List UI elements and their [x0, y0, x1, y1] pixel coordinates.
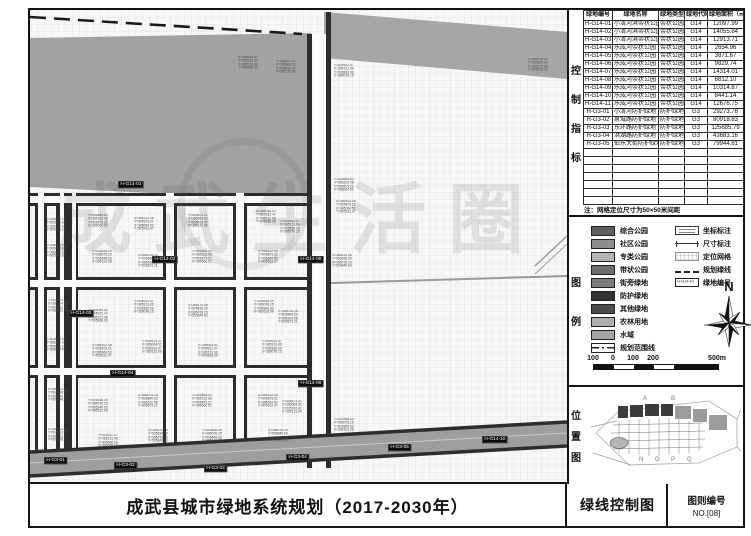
- green-space-id-badge: H-G3-04: [286, 454, 309, 461]
- table-cell: [659, 197, 685, 205]
- scale-bar-labels: 1000100200500m: [593, 355, 725, 364]
- table-cell: G14: [685, 37, 708, 45]
- table-row: H-G3-03东环路防护绿地防护绿地G3125685.79: [584, 125, 744, 133]
- coordinate-annotation: Y=505873.21X=385064.52Y=505912.47X=38513…: [282, 400, 302, 414]
- table-cell: [708, 197, 744, 205]
- legend-item-label: 其他绿地: [620, 304, 648, 314]
- table-cell: 带状公园: [659, 61, 685, 69]
- scale-segment: [674, 365, 718, 369]
- legend-symbol-dim-icon: [675, 239, 699, 248]
- table-empty-row: [584, 165, 744, 173]
- coordinate-annotation: Y=505912.47X=385131.96Y=505836.09X=38507…: [262, 340, 282, 354]
- legend-symbol-idbox-icon: H-G14-01: [675, 278, 699, 287]
- green-space-id-badge: H-G14-09: [298, 380, 324, 387]
- table-cell: 带状公园: [659, 37, 685, 45]
- table-cell: H-G14-06: [584, 61, 613, 69]
- coordinate-annotation: Y=505836.09X=385076.15Y=505849.63X=38510…: [202, 429, 222, 443]
- coordinate-annotation: X=385131.96Y=505836.09X=385076.15Y=50584…: [48, 388, 68, 402]
- table-cell: 带状公园: [659, 45, 685, 53]
- sheet-number-label: 图则编号: [687, 493, 725, 507]
- grid-letter: B: [671, 396, 675, 402]
- table-cell: 防护绿地: [659, 133, 685, 141]
- table-cell: 防护绿地: [659, 125, 685, 133]
- coordinate-annotation: Y=505849.63X=385102.08Y=505873.21X=38506…: [46, 338, 66, 352]
- north-label: N: [703, 279, 751, 294]
- table-cell: 乐成河带状公园: [613, 85, 659, 93]
- table-cell: 6812.10: [708, 77, 744, 85]
- coordinate-annotation: X=385102.08Y=505873.21X=385064.52Y=50591…: [258, 394, 278, 408]
- right-panel: 控 制 指 标 绿地编号绿地名称绿地类型绿地代码绿地面积（㎡） H-G14-01…: [569, 10, 743, 484]
- table-cell: H-G14-01: [584, 21, 613, 29]
- coordinate-annotation: Y=505912.47X=385131.96Y=505836.09X=38507…: [134, 300, 154, 314]
- legend-symbol-item: 坐标标注: [675, 224, 731, 237]
- table-row: H-G14-08乐成河带状公园带状公园G146812.10: [584, 77, 744, 85]
- table-cell: [659, 173, 685, 181]
- legend-symbol-label: 尺寸标注: [703, 239, 731, 249]
- table-header-cell: 绿地名称: [613, 11, 659, 21]
- table-body: H-G14-01小清河滨带状公园带状公园G1412097.99H-G14-02小…: [584, 21, 744, 205]
- coordinate-annotation: Y=505912.47X=385131.96Y=505836.09X=38507…: [98, 434, 118, 448]
- table-cell: G3: [685, 125, 708, 133]
- coordinate-annotation: X=385076.15Y=505849.63X=385102.08Y=50587…: [528, 58, 548, 72]
- table-cell: H-G14-11: [584, 101, 613, 109]
- table-cell: 8441.14: [708, 93, 744, 101]
- table-cell: 带状公园: [659, 85, 685, 93]
- coordinate-annotation: X=385064.52Y=505912.47X=385131.96Y=50583…: [48, 428, 68, 442]
- table-cell: 防护绿地: [659, 141, 685, 149]
- scale-segment: [654, 365, 674, 369]
- table-cell: [708, 181, 744, 189]
- table-cell: H-G14-04: [584, 45, 613, 53]
- table-cell: [685, 189, 708, 197]
- section-control-indicators: 控 制 指 标 绿地编号绿地名称绿地类型绿地代码绿地面积（㎡） H-G14-01…: [569, 10, 743, 217]
- table-row: H-G14-07乐成河带状公园带状公园G1414314.01: [584, 69, 744, 77]
- legend-symbol-label: 坐标标注: [703, 226, 731, 236]
- sheet-number-value: NO.[08]: [693, 509, 721, 518]
- vlabel-char: 制: [571, 91, 581, 106]
- table-row: H-G14-05乐成河带状公园带状公园G143871.67: [584, 53, 744, 61]
- table-cell: 乐成河带状公园: [613, 69, 659, 77]
- table-cell: [584, 173, 613, 181]
- table-cell: [584, 165, 613, 173]
- coordinate-annotation: Y=505873.21X=385064.52Y=505912.47X=38513…: [48, 299, 68, 313]
- table-cell: G14: [685, 93, 708, 101]
- table-cell: H-G3-05: [584, 141, 613, 149]
- table-cell: 乐成河带状公园: [613, 101, 659, 109]
- legend-item: 带状公园: [591, 263, 655, 276]
- legend-item: 水域: [591, 328, 655, 341]
- legend-swatch: [591, 304, 615, 314]
- table-cell: 125685.79: [708, 125, 744, 133]
- table-cell: 12676.75: [708, 101, 744, 109]
- coordinate-annotation: Y=505873.21X=385064.52Y=505912.47X=38513…: [142, 340, 162, 354]
- legend-item-label: 水域: [620, 330, 634, 340]
- table-row: H-G14-03小清河滨带状公园带状公园G1412913.71: [584, 37, 744, 45]
- legend-swatch: [591, 343, 615, 353]
- table-cell: 3871.67: [708, 53, 744, 61]
- table-cell: [584, 149, 613, 157]
- coordinate-annotation: Y=505836.09X=385076.15Y=505849.63X=38510…: [254, 300, 274, 314]
- table-cell: [613, 173, 659, 181]
- vlabel-char: 置: [571, 428, 581, 443]
- legend-swatch: [591, 278, 615, 288]
- legend-symbol-item: 定位网格: [675, 250, 731, 263]
- drawing-frame: 成武生活圈 X=385076.15Y=505849.63X=385102.08Y…: [28, 8, 745, 528]
- vlabel-char: 图: [571, 449, 581, 464]
- table-cell: [613, 197, 659, 205]
- legend-item: 综合公园: [591, 224, 655, 237]
- section-label-location: 位 置 图: [569, 387, 583, 484]
- table-cell: 43683.16: [708, 133, 744, 141]
- table-cell: 带状公园: [659, 77, 685, 85]
- table-cell: 9829.74: [708, 61, 744, 69]
- table-cell: 79944.81: [708, 141, 744, 149]
- section-label-control: 控 制 指 标: [569, 10, 583, 215]
- legend-swatch: [591, 317, 615, 327]
- green-space-id-badge: H-G3-01: [44, 457, 67, 464]
- legend-swatch-list: 综合公园社区公园专类公园带状公园街旁绿地防护绿地其他绿地农林用地水域规划范围线: [591, 224, 655, 354]
- table-cell: G14: [685, 61, 708, 69]
- table-cell: H-G3-03: [584, 125, 613, 133]
- table-cell: [708, 165, 744, 173]
- grid-letter: P: [671, 457, 675, 463]
- scale-bar-segments: [593, 364, 719, 370]
- table-cell: [685, 165, 708, 173]
- table-cell: 防护绿地: [659, 109, 685, 117]
- table-cell: 12913.71: [708, 37, 744, 45]
- legend-item-label: 规划范围线: [620, 343, 655, 353]
- section-location-map: 位 置 图: [569, 387, 743, 484]
- legend-symbol-coord-icon: [675, 226, 699, 235]
- scale-label: 100: [627, 355, 639, 362]
- legend-swatch: [591, 226, 615, 236]
- green-space-id-badge: H-G14-03: [68, 310, 94, 317]
- table-cell: G14: [685, 77, 708, 85]
- plan-map: 成武生活圈 X=385076.15Y=505849.63X=385102.08Y…: [30, 10, 569, 484]
- legend-swatch: [591, 265, 615, 275]
- table-cell: 伯乐大街防护绿地: [613, 141, 659, 149]
- sheet-number-block: 图则编号 NO.[08]: [670, 484, 743, 526]
- table-empty-row: [584, 189, 744, 197]
- scale-bar: 1000100200500m: [593, 355, 725, 370]
- title-bar: 成武县城市绿地系统规划（2017-2030年） 绿线控制图 图则编号 NO.[0…: [30, 484, 743, 526]
- watermark-text: 成武生活圈: [56, 158, 546, 268]
- vlabel-char: 图: [571, 274, 581, 289]
- table-cell: [613, 189, 659, 197]
- green-space-id-badge: H-G3-05: [388, 444, 411, 451]
- table-cell: H-G14-09: [584, 85, 613, 93]
- coordinate-annotation: Y=505836.09X=385076.15Y=505849.63X=38510…: [334, 418, 354, 432]
- table-cell: H-G3-01: [584, 109, 613, 117]
- legend-item-label: 街旁绿地: [620, 278, 648, 288]
- legend-item-label: 带状公园: [620, 265, 648, 275]
- table-cell: 12097.99: [708, 21, 744, 29]
- table-empty-row: [584, 149, 744, 157]
- table-cell: 带状公园: [659, 21, 685, 29]
- table-cell: H-G14-02: [584, 29, 613, 37]
- legend-item: 社区公园: [591, 237, 655, 250]
- table-cell: [659, 165, 685, 173]
- green-space-id-badge: H-G14-10: [482, 436, 508, 443]
- coordinate-annotation: Y=505873.21X=385064.52Y=505912.47X=38513…: [276, 60, 296, 74]
- table-cell: 小清河滨带状公园: [613, 29, 659, 37]
- table-cell: [685, 173, 708, 181]
- vlabel-char: 例: [571, 313, 581, 328]
- table-empty-row: [584, 173, 744, 181]
- table-cell: G3: [685, 117, 708, 125]
- compass-rose: N: [703, 279, 751, 357]
- green-space-id-badge: H-G14-04: [110, 370, 136, 377]
- legend-symbol-gdash-icon: [675, 271, 699, 273]
- table-cell: 乐成河带状公园: [613, 77, 659, 85]
- grid-letter: N: [639, 457, 643, 463]
- coordinate-annotation: X=385131.96Y=505836.09X=385076.15Y=50584…: [148, 429, 168, 443]
- table-header-cell: 绿地类型: [659, 11, 685, 21]
- table-cell: 2654.96: [708, 45, 744, 53]
- table-cell: G14: [685, 21, 708, 29]
- legend-item-label: 专类公园: [620, 252, 648, 262]
- compass-rose-icon: [703, 294, 751, 352]
- table-cell: 带状公园: [659, 93, 685, 101]
- table-cell: [708, 149, 744, 157]
- legend-symbol-item: 尺寸标注: [675, 237, 731, 250]
- sheet-name: 绿线控制图: [569, 484, 668, 526]
- coordinate-annotation: X=385064.52Y=505912.47X=385131.96Y=50583…: [238, 56, 258, 70]
- legend-item: 防护绿地: [591, 289, 655, 302]
- table-empty-row: [584, 181, 744, 189]
- table-cell: 带状公园: [659, 29, 685, 37]
- table-empty-row: [584, 157, 744, 165]
- grid-letter: Q: [687, 457, 692, 463]
- table-cell: G14: [685, 69, 708, 77]
- table-cell: [613, 165, 659, 173]
- table-cell: G3: [685, 109, 708, 117]
- table-cell: [584, 197, 613, 205]
- table-cell: G3: [685, 133, 708, 141]
- table-cell: 小清河滨带状公园: [613, 37, 659, 45]
- table-cell: 防护绿地: [659, 117, 685, 125]
- table-row: H-G3-05伯乐大街防护绿地防护绿地G379944.81: [584, 141, 744, 149]
- legend-item: 其他绿地: [591, 302, 655, 315]
- table-cell: [613, 149, 659, 157]
- table-cell: [584, 189, 613, 197]
- table-note: 注：网格定位尺寸为50×50米间距: [583, 205, 743, 217]
- grid-letter: O: [655, 457, 660, 463]
- table-cell: [613, 157, 659, 165]
- vlabel-char: 控: [571, 62, 581, 77]
- table-row: H-G3-01小清河防护绿地防护绿地G329273.78: [584, 109, 744, 117]
- legend-swatch: [591, 330, 615, 340]
- table-cell: [659, 157, 685, 165]
- table-cell: 带状公园: [659, 69, 685, 77]
- grid-letter: A: [643, 396, 647, 402]
- table-cell: G14: [685, 85, 708, 93]
- coordinate-annotation: X=385076.15Y=505849.63X=385102.08Y=50587…: [268, 429, 288, 443]
- table-cell: [685, 157, 708, 165]
- legend-item-label: 综合公园: [620, 226, 648, 236]
- table-cell: 乐成河带状公园: [613, 45, 659, 53]
- table-header-cell: 绿地编号: [584, 11, 613, 21]
- table-row: H-G3-02泉城路防护绿地防护绿地G380918.83: [584, 117, 744, 125]
- scale-segment: [614, 365, 634, 369]
- table-cell: G14: [685, 53, 708, 61]
- green-space-table: 绿地编号绿地名称绿地类型绿地代码绿地面积（㎡） H-G14-01小清河滨带状公园…: [583, 10, 744, 205]
- legend-item: 规划范围线: [591, 341, 655, 354]
- table-cell: 14055.84: [708, 29, 744, 37]
- legend-symbol-label: 定位网格: [703, 252, 731, 262]
- table-row: H-G14-01小清河滨带状公园带状公园G1412097.99: [584, 21, 744, 29]
- legend-item: 街旁绿地: [591, 276, 655, 289]
- table-row: H-G14-06乐成河带状公园带状公园G149829.74: [584, 61, 744, 69]
- legend-symbol-item: 规划绿线: [675, 263, 731, 276]
- table-row: H-G14-04乐成河带状公园带状公园G142654.96: [584, 45, 744, 53]
- table-cell: H-G14-10: [584, 93, 613, 101]
- table-cell: 乐成河带状公园: [613, 93, 659, 101]
- coordinate-annotation: X=385131.96Y=505836.09X=385076.15Y=50584…: [188, 304, 208, 318]
- green-space-id-badge: H-G3-03: [204, 465, 227, 472]
- section-label-legend: 图 例: [569, 217, 583, 385]
- legend-item: 农林用地: [591, 315, 655, 328]
- legend-item: 专类公园: [591, 250, 655, 263]
- legend-symbol-grid-icon: [675, 252, 699, 261]
- legend-swatch: [591, 252, 615, 262]
- table-cell: 洪湖路防护绿地: [613, 133, 659, 141]
- coordinate-annotation: X=385076.15Y=505849.63X=385102.08Y=50587…: [278, 310, 298, 324]
- legend-item-label: 防护绿地: [620, 291, 648, 301]
- table-cell: [584, 181, 613, 189]
- coordinate-annotation: X=385076.15Y=505849.63X=385102.08Y=50587…: [138, 394, 158, 408]
- legend-swatch: [591, 239, 615, 249]
- coordinate-annotation: Y=505836.09X=385076.15Y=505849.63X=38510…: [88, 399, 108, 413]
- table-cell: [708, 189, 744, 197]
- section-legend: 图 例 综合公园社区公园专类公园带状公园街旁绿地防护绿地其他绿地农林用地水域规划…: [569, 217, 743, 387]
- table-cell: H-G14-03: [584, 37, 613, 45]
- coordinate-annotation: X=385102.08Y=505873.21X=385064.52Y=50591…: [92, 344, 112, 358]
- legend-item-label: 社区公园: [620, 239, 648, 249]
- location-mini-map: ABNOPQ: [591, 391, 741, 479]
- table-cell: [685, 149, 708, 157]
- table-cell: [685, 197, 708, 205]
- table-cell: 泉城路防护绿地: [613, 117, 659, 125]
- table-cell: [659, 149, 685, 157]
- table-row: H-G14-11乐成河带状公园带状公园G1412676.75: [584, 101, 744, 109]
- table-empty-row: [584, 197, 744, 205]
- table-cell: H-G14-05: [584, 53, 613, 61]
- scale-segment: [594, 365, 614, 369]
- vlabel-char: 标: [571, 149, 581, 164]
- legend-swatch: [591, 291, 615, 301]
- table-cell: G14: [685, 29, 708, 37]
- table-cell: 14314.01: [708, 69, 744, 77]
- table-cell: [584, 157, 613, 165]
- coordinate-annotation: Y=505912.47X=385131.96Y=505836.09X=38507…: [334, 64, 354, 78]
- table-row: H-G14-10乐成河带状公园带状公园G148441.14: [584, 93, 744, 101]
- table-header-cell: 绿地代码: [685, 11, 708, 21]
- table-header-cell: 绿地面积（㎡）: [708, 11, 744, 21]
- table-cell: [685, 181, 708, 189]
- table-cell: 东环路防护绿地: [613, 125, 659, 133]
- table-cell: 带状公园: [659, 53, 685, 61]
- table-cell: [708, 173, 744, 181]
- scale-label: 0: [611, 355, 615, 362]
- table-row: H-G14-02小清河滨带状公园带状公园G1414055.84: [584, 29, 744, 37]
- table-cell: H-G3-02: [584, 117, 613, 125]
- table-cell: [659, 189, 685, 197]
- table-cell: H-G14-07: [584, 69, 613, 77]
- vlabel-char: 位: [571, 407, 581, 422]
- table-cell: [613, 181, 659, 189]
- scale-label: 100: [587, 355, 599, 362]
- green-space-id-badge: H-G3-02: [114, 462, 137, 469]
- table-cell: 29273.78: [708, 109, 744, 117]
- table-cell: 带状公园: [659, 101, 685, 109]
- vlabel-char: 指: [571, 120, 581, 135]
- scale-label: 200: [647, 355, 659, 362]
- scale-label: 500m: [708, 355, 726, 362]
- table-cell: [659, 181, 685, 189]
- table-cell: 80918.83: [708, 117, 744, 125]
- legend-item-label: 农林用地: [620, 317, 648, 327]
- table-cell: 乐成河带状公园: [613, 61, 659, 69]
- table-cell: 乐成河带状公园: [613, 53, 659, 61]
- coordinate-annotation: X=385064.52Y=505912.47X=385131.96Y=50583…: [198, 344, 218, 358]
- legend-symbol-label: 规划绿线: [703, 265, 731, 275]
- table-cell: G3: [685, 141, 708, 149]
- table-cell: 小清河防护绿地: [613, 109, 659, 117]
- table-cell: G14: [685, 101, 708, 109]
- coordinate-annotation: Y=505849.63X=385102.08Y=505873.21X=38506…: [192, 394, 212, 408]
- scale-segment: [634, 365, 654, 369]
- table-row: H-G14-09乐成河带状公园带状公园G1410314.87: [584, 85, 744, 93]
- table-cell: [708, 157, 744, 165]
- table-cell: H-G3-04: [584, 133, 613, 141]
- table-cell: 10314.87: [708, 85, 744, 93]
- sheet-main-title: 成武县城市绿地系统规划（2017-2030年）: [30, 484, 567, 526]
- table-cell: G14: [685, 45, 708, 53]
- table-row: H-G3-04洪湖路防护绿地防护绿地G343683.16: [584, 133, 744, 141]
- table-header: 绿地编号绿地名称绿地类型绿地代码绿地面积（㎡）: [584, 11, 744, 21]
- table-cell: H-G14-08: [584, 77, 613, 85]
- table-cell: 小清河滨带状公园: [613, 21, 659, 29]
- plan-sheet-page: { "title_block": { "main_title": "成武县城市绿…: [0, 0, 751, 536]
